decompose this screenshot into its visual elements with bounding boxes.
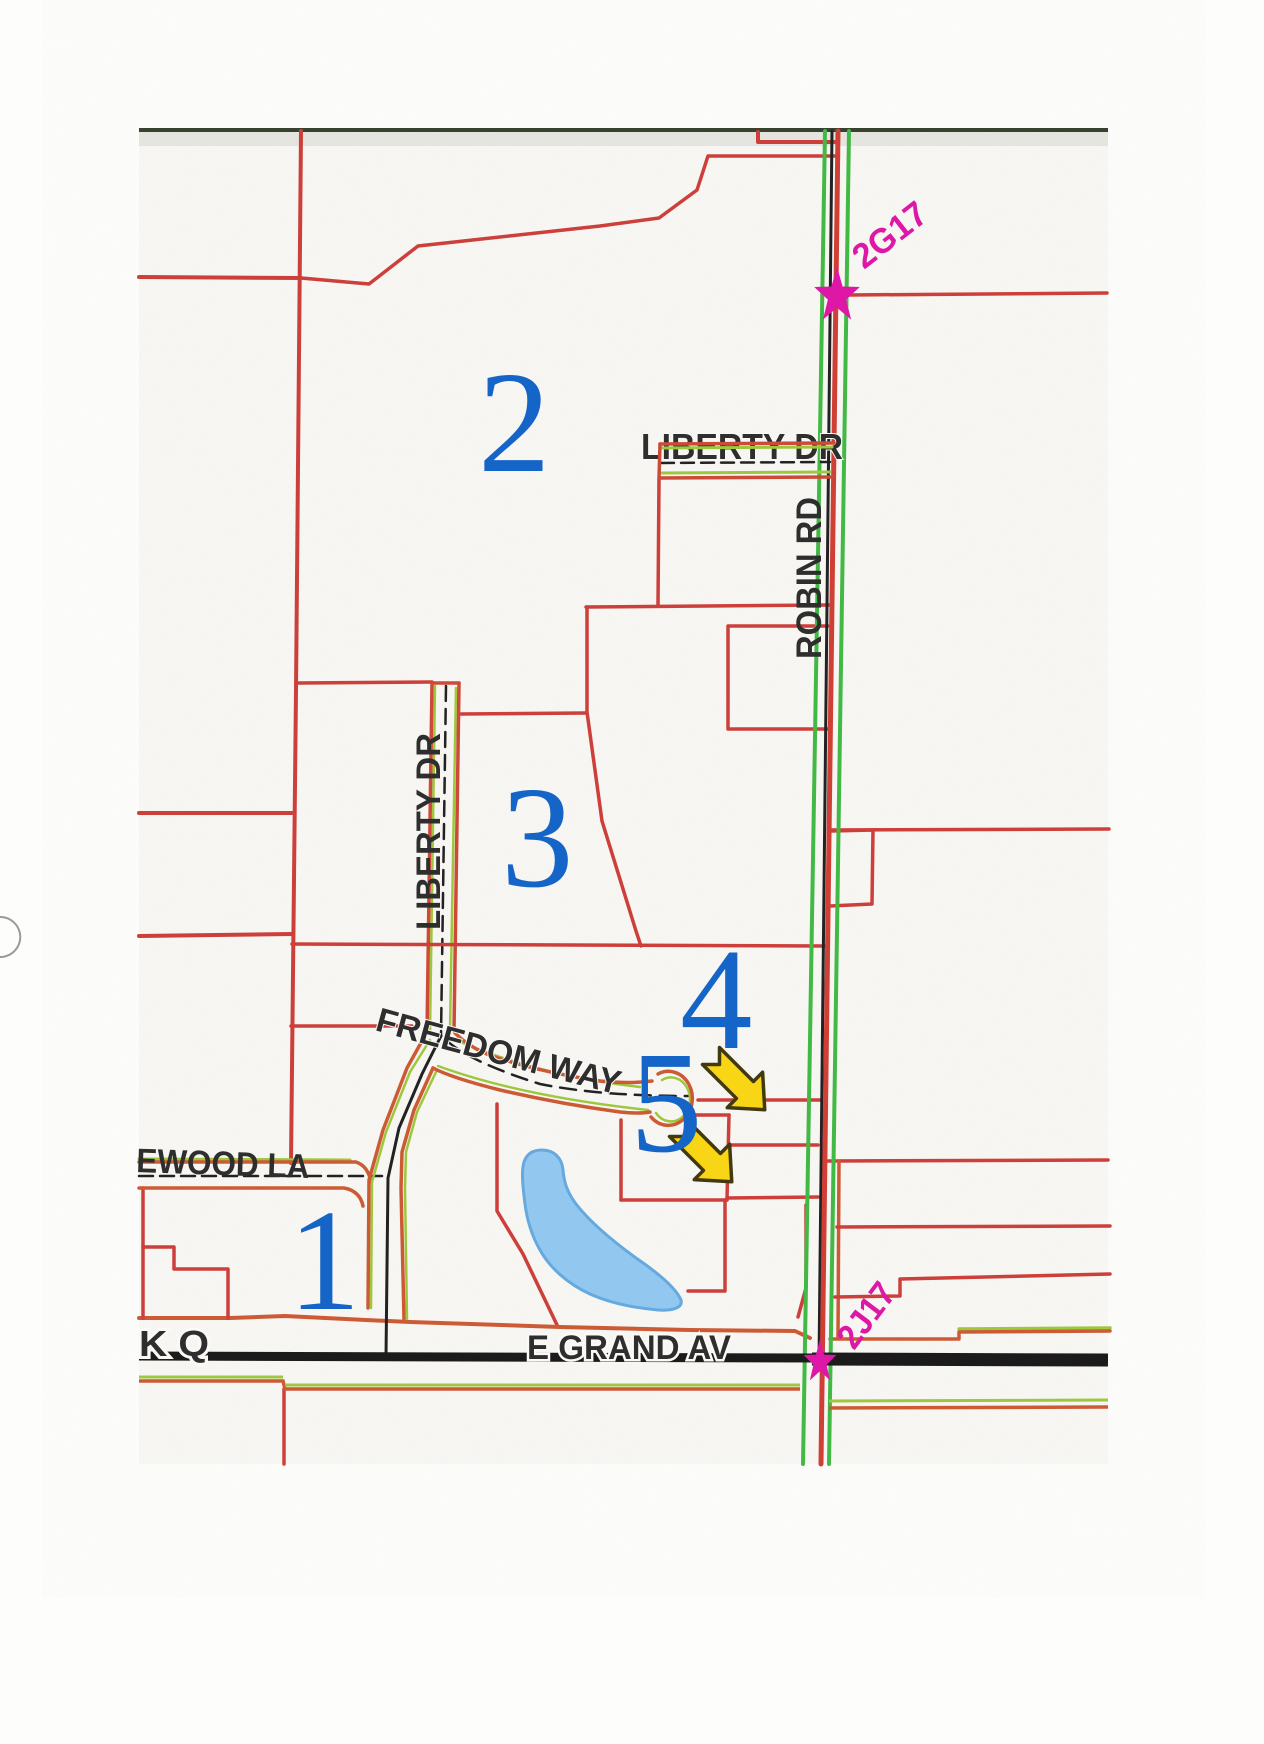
svg-text:LIBERTY DR: LIBERTY DR [410, 733, 448, 930]
svg-text:K Q: K Q [139, 1323, 209, 1364]
svg-text:EWOOD LA: EWOOD LA [136, 1142, 310, 1186]
svg-text:E GRAND AV: E GRAND AV [527, 1329, 731, 1367]
svg-text:5: 5 [630, 1023, 703, 1183]
svg-text:ROBIN RD: ROBIN RD [790, 497, 829, 659]
svg-text:2: 2 [478, 343, 551, 503]
svg-text:3: 3 [501, 758, 574, 918]
svg-text:1: 1 [288, 1181, 361, 1341]
